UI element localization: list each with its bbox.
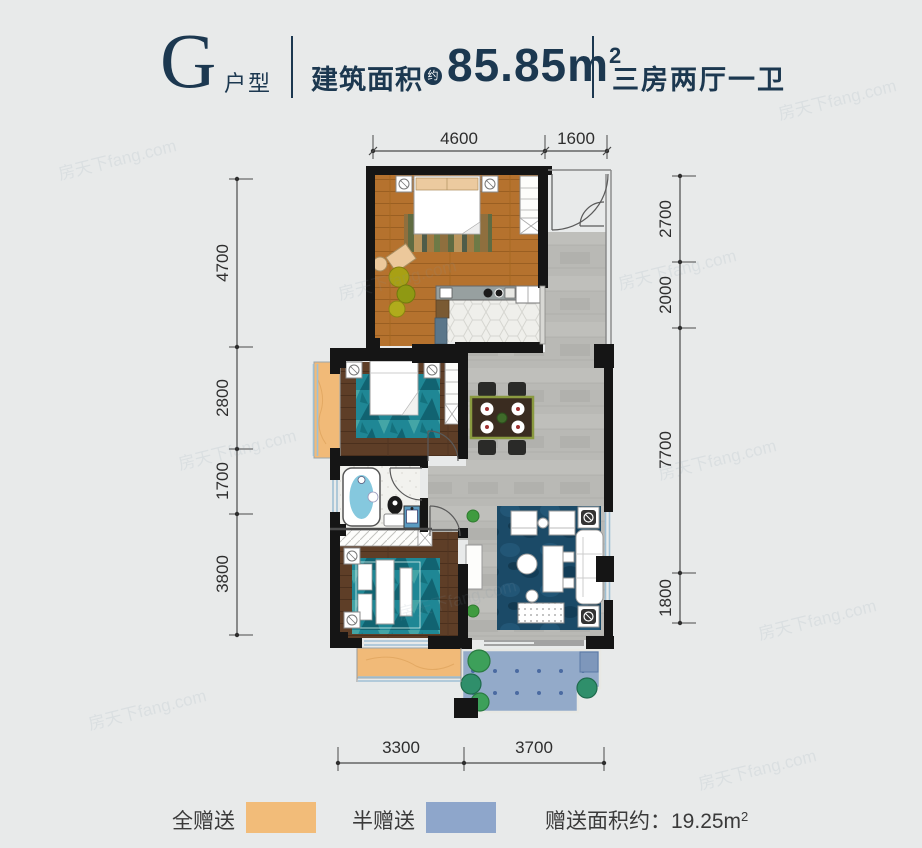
dim-bottom: 3300 3700	[336, 738, 606, 771]
ottoman	[373, 257, 387, 271]
dining-chair	[508, 382, 526, 397]
kitchen-cabinet-tall	[435, 318, 447, 344]
dim-label: 3300	[382, 738, 420, 757]
plant	[467, 510, 479, 522]
coffee-table	[543, 546, 563, 592]
dining-chair	[478, 440, 496, 455]
balcony-bottom-full-gift	[357, 648, 461, 678]
centerpiece	[497, 413, 507, 423]
watermark-text: 房天下fang.com	[86, 686, 208, 734]
armchair	[511, 511, 537, 535]
floorplan-page: G 户型 建筑面积 约 85.85m2 三房两厅一卫	[0, 0, 922, 848]
plant	[389, 301, 405, 317]
sliding-door	[484, 641, 584, 645]
entry-door	[552, 174, 608, 230]
floorplan-drawing: 4600 1600 4700 2800 1700 3800	[0, 0, 922, 848]
dim-label: 1700	[213, 462, 232, 500]
dim-label: 4600	[440, 129, 478, 148]
gift-area-superscript: 2	[741, 809, 748, 824]
legend: 全赠送 半赠送 赠送面积约：19.25m2	[0, 796, 922, 840]
dim-label: 1800	[656, 579, 675, 617]
dim-label: 3700	[515, 738, 553, 757]
gift-area-label: 赠送面积约：	[545, 810, 671, 833]
watermark-text: 房天下fang.com	[616, 246, 738, 294]
dining-chair	[508, 440, 526, 455]
dim-right: 2700 2000 7700 1800	[656, 174, 696, 625]
kitchen-sink	[440, 288, 452, 298]
round-table	[517, 554, 537, 574]
dim-left: 4700 2800 1700 3800	[213, 177, 253, 637]
dim-label: 2800	[213, 379, 232, 417]
bedroom3-furniture	[338, 530, 440, 634]
legend-full-gift-label: 全赠送	[172, 805, 235, 835]
balcony-bench	[580, 652, 598, 672]
dim-label: 4700	[213, 244, 232, 282]
dim-label: 1600	[557, 129, 595, 148]
plant	[577, 678, 597, 698]
bedroom3-wardrobe	[338, 530, 418, 546]
side-table	[538, 518, 548, 528]
stove-burner	[495, 289, 503, 297]
legend-gift-area: 赠送面积约：19.25m2	[545, 805, 748, 835]
legend-half-gift-label: 半赠送	[352, 805, 415, 835]
watermark-text: 房天下fang.com	[776, 76, 898, 124]
tv-stand	[518, 603, 564, 623]
watermark-text: 房天下fang.com	[756, 596, 878, 644]
plant	[468, 650, 490, 672]
stove-burner	[484, 289, 493, 298]
watermark-text: 房天下fang.com	[56, 136, 178, 184]
gift-area-value: 19.25m	[671, 810, 741, 833]
legend-full-gift-swatch	[246, 802, 316, 833]
armchair	[549, 511, 575, 535]
dim-label: 3800	[213, 555, 232, 593]
dim-label: 2700	[656, 200, 675, 238]
pillow	[358, 564, 372, 590]
watermark-text: 房天下fang.com	[696, 746, 818, 794]
legend-half-gift-swatch	[426, 802, 496, 833]
hall-cabinet	[466, 545, 482, 589]
dining-chair	[478, 382, 496, 397]
kitchen-cabinet	[436, 300, 449, 318]
dim-top: 4600 1600	[369, 129, 611, 159]
plant	[461, 674, 481, 694]
bedroom3-bed	[376, 560, 394, 624]
